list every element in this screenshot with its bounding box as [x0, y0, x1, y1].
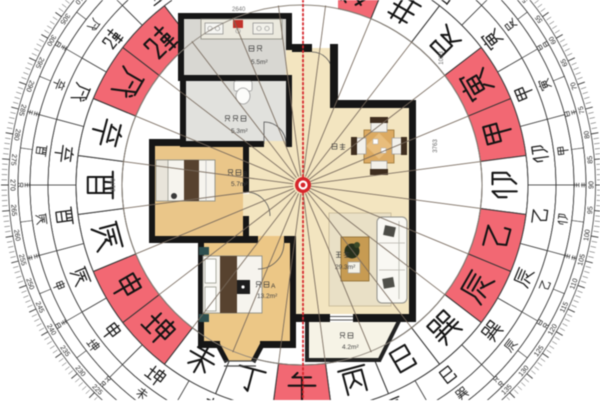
svg-text:5.3m²: 5.3m² [231, 128, 248, 135]
svg-text:5.5m²: 5.5m² [251, 59, 268, 66]
svg-text:4.2m²: 4.2m² [342, 344, 359, 351]
svg-text:29.3m²: 29.3m² [335, 264, 356, 271]
svg-text:275: 275 [9, 154, 17, 166]
svg-text:85: 85 [587, 155, 595, 163]
svg-text:270: 270 [9, 179, 16, 191]
svg-text:5.7m²: 5.7m² [231, 181, 248, 188]
svg-text:3763: 3763 [433, 139, 439, 153]
svg-text:90: 90 [588, 181, 595, 189]
svg-text:265: 265 [9, 204, 17, 216]
svg-text:1023: 1023 [439, 51, 445, 65]
svg-text:13.2m²: 13.2m² [257, 293, 278, 300]
svg-text:2640: 2640 [232, 7, 246, 13]
svg-text:3170: 3170 [111, 178, 117, 192]
svg-text:A: A [271, 283, 276, 290]
svg-text:95: 95 [587, 206, 595, 214]
